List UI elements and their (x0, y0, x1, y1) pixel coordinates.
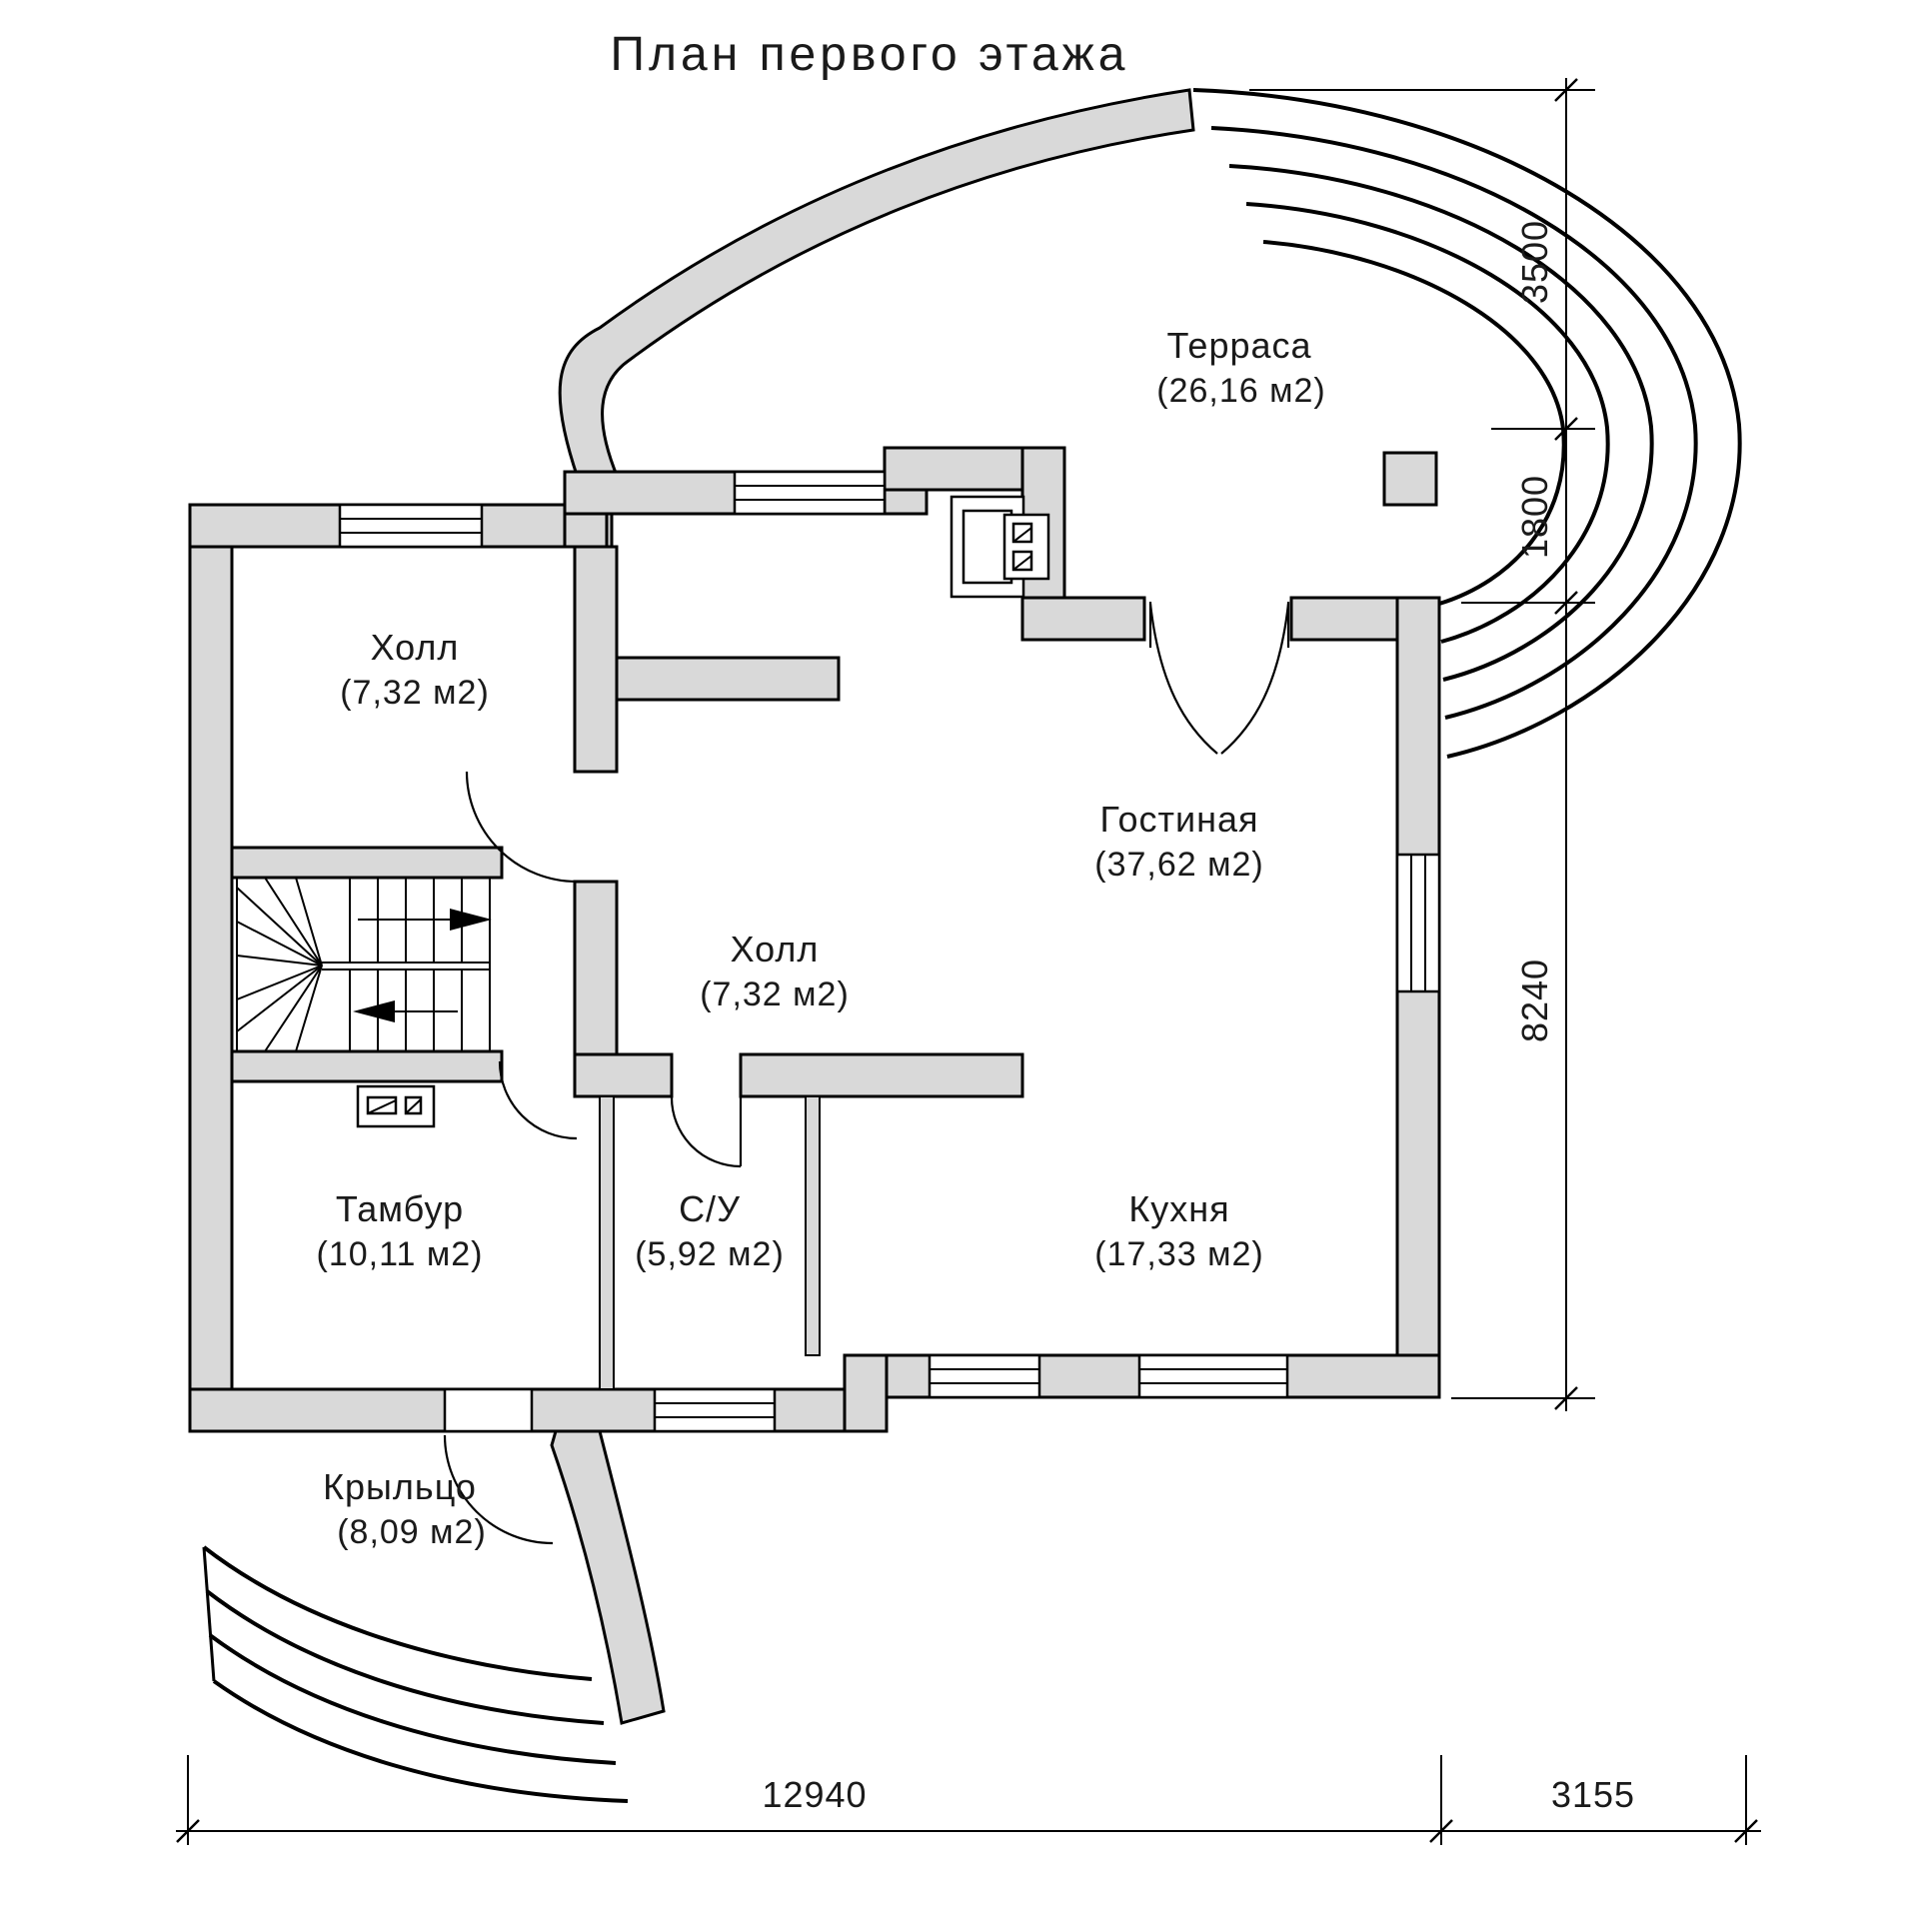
dimension-bottom: 12940 3155 (176, 1755, 1761, 1845)
dim-bottom-main: 12940 (762, 1774, 867, 1815)
window-kitchen-left (930, 1355, 1039, 1397)
svg-text:(26,16 м2): (26,16 м2) (1156, 372, 1325, 410)
dim-bottom-terrace: 3155 (1551, 1774, 1635, 1815)
window-top-center (735, 472, 885, 514)
room-label-hall-upper: Холл (7,32 м2) (340, 627, 490, 712)
svg-text:(7,32 м2): (7,32 м2) (700, 975, 850, 1013)
stair-arrow-down-head (353, 1000, 395, 1022)
svg-text:Тамбур: Тамбур (336, 1188, 464, 1229)
staircase (237, 878, 492, 1051)
svg-text:С/У: С/У (679, 1188, 741, 1229)
entry-door-opening (445, 1389, 532, 1431)
svg-text:Холл: Холл (731, 929, 820, 969)
dim-right-middle: 1800 (1514, 475, 1555, 559)
terrace-curved-wall (560, 90, 1193, 478)
floor-plan-page: 3500 1800 8240 12940 3155 План первого э… (0, 0, 1919, 1932)
terrace-steps (1193, 90, 1740, 757)
room-label-terrace: Терраса (26,16 м2) (1156, 325, 1325, 410)
french-doors (1150, 602, 1288, 754)
svg-text:Кухня: Кухня (1128, 1188, 1229, 1229)
svg-text:Крыльцо: Крыльцо (323, 1466, 477, 1507)
dim-right-bottom: 8240 (1514, 959, 1555, 1042)
room-label-wc: С/У (5,92 м2) (635, 1188, 785, 1273)
svg-text:(5,92 м2): (5,92 м2) (635, 1235, 785, 1273)
svg-text:Терраса: Терраса (1166, 325, 1311, 366)
room-label-kitchen: Кухня (17,33 м2) (1094, 1188, 1263, 1273)
svg-text:Гостиная: Гостиная (1099, 799, 1258, 840)
svg-text:Холл: Холл (371, 627, 460, 668)
door-tambour (500, 1061, 577, 1138)
door-wc (672, 1097, 741, 1166)
room-label-hall-center: Холл (7,32 м2) (700, 929, 850, 1013)
stair-arrow-up-head (450, 909, 492, 931)
window-right (1397, 855, 1439, 991)
radiator-symbol (358, 1086, 434, 1126)
terrace-pillar (1384, 453, 1436, 505)
porch-curved-wall (552, 1431, 664, 1723)
svg-text:(7,32 м2): (7,32 м2) (340, 674, 490, 712)
dim-right-top: 3500 (1514, 220, 1555, 304)
page-title: План первого этажа (611, 28, 1129, 81)
room-label-porch: Крыльцо (8,09 м2) (323, 1466, 487, 1551)
room-label-living: Гостиная (37,62 м2) (1094, 799, 1263, 884)
svg-text:(17,33 м2): (17,33 м2) (1094, 1235, 1263, 1273)
windows (340, 472, 1439, 1431)
floor-plan-drawing: 3500 1800 8240 12940 3155 План первого э… (0, 0, 1919, 1932)
window-wc (655, 1389, 775, 1431)
window-kitchen-right (1139, 1355, 1287, 1397)
svg-text:(37,62 м2): (37,62 м2) (1094, 846, 1263, 884)
svg-text:(8,09 м2): (8,09 м2) (337, 1513, 487, 1551)
room-label-tambour: Тамбур (10,11 м2) (317, 1188, 484, 1273)
window-top-left (340, 505, 482, 547)
svg-text:(10,11 м2): (10,11 м2) (317, 1235, 484, 1273)
